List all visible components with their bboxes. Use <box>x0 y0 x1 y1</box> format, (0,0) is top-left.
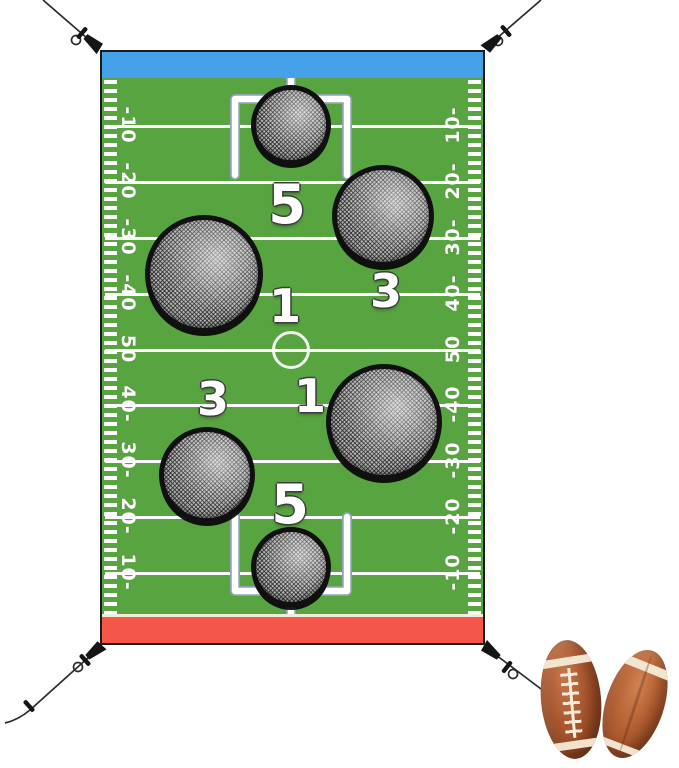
corner-hook-bottom-right <box>479 640 502 662</box>
score-5-top: 5 <box>247 176 327 234</box>
endzone-bottom-red <box>102 617 483 643</box>
yard-number-left: -30 <box>117 207 139 267</box>
football-stripe <box>536 651 606 671</box>
corner-hook-top-right <box>481 32 504 54</box>
rope-clip <box>501 660 513 674</box>
yard-number-right: -30 <box>442 430 464 490</box>
rope-clip <box>76 26 89 39</box>
mesh-hole-lower-left <box>159 427 255 523</box>
mesh-hole-bottom-small <box>251 527 331 607</box>
score-5-bottom: 5 <box>250 476 330 534</box>
football-left <box>536 638 606 762</box>
yard-number-left: 30- <box>117 430 139 490</box>
hash-marks-right <box>468 80 481 614</box>
product-photo: -10 -20 -30 -40 50 40- 30- 20- 10- 10- 2… <box>0 0 679 768</box>
yard-number-right: -10 <box>442 542 464 602</box>
yard-number-left: 20- <box>117 486 139 546</box>
center-circle <box>272 331 310 369</box>
yard-number-left: -40 <box>117 263 139 323</box>
yard-number-right: 50 <box>442 319 464 379</box>
rope-clip <box>79 653 92 666</box>
rope-loop <box>509 670 518 679</box>
mesh-hole-top-small <box>251 85 331 165</box>
score-1-mid-right: 1 <box>270 371 350 421</box>
yard-number-right: -20 <box>442 486 464 546</box>
yard-number-left: 50 <box>117 319 139 379</box>
rope-clip <box>500 24 513 37</box>
score-1-mid-left: 1 <box>245 281 325 331</box>
yard-number-left: 10- <box>117 542 139 602</box>
football-seam <box>618 655 652 753</box>
mesh-hole-upper-right <box>332 165 434 267</box>
corner-hook-top-left <box>82 32 105 54</box>
rope-loop <box>72 36 81 45</box>
football-stripe <box>611 649 679 685</box>
rope-bottom-right <box>484 646 545 692</box>
yard-number-left: 40- <box>117 374 139 434</box>
score-3-lower-left: 3 <box>173 374 253 424</box>
rope-top-right <box>489 0 541 45</box>
yard-number-left: -20 <box>117 151 139 211</box>
yard-number-right: 10- <box>442 95 464 155</box>
rope-stake-clip <box>23 699 36 712</box>
hash-marks-left <box>104 80 117 614</box>
yard-number-right: 40- <box>442 263 464 323</box>
rope-bottom-left <box>5 647 100 723</box>
score-3-upper-right: 3 <box>346 266 426 316</box>
football-right <box>590 642 679 766</box>
yard-number-right: 20- <box>442 151 464 211</box>
rope-loop <box>494 37 503 46</box>
rope-top-left <box>43 0 95 45</box>
yard-number-right: 30- <box>442 207 464 267</box>
football-stripe <box>537 736 606 754</box>
endzone-top-blue <box>102 52 483 78</box>
rope-loop <box>74 663 83 672</box>
corner-hook-bottom-left <box>83 640 106 662</box>
yard-number-right: -40 <box>442 374 464 434</box>
football-laces <box>560 672 582 736</box>
toss-game-banner: -10 -20 -30 -40 50 40- 30- 20- 10- 10- 2… <box>102 52 483 643</box>
yard-number-left: -10 <box>117 95 139 155</box>
field-green: -10 -20 -30 -40 50 40- 30- 20- 10- 10- 2… <box>102 78 483 617</box>
